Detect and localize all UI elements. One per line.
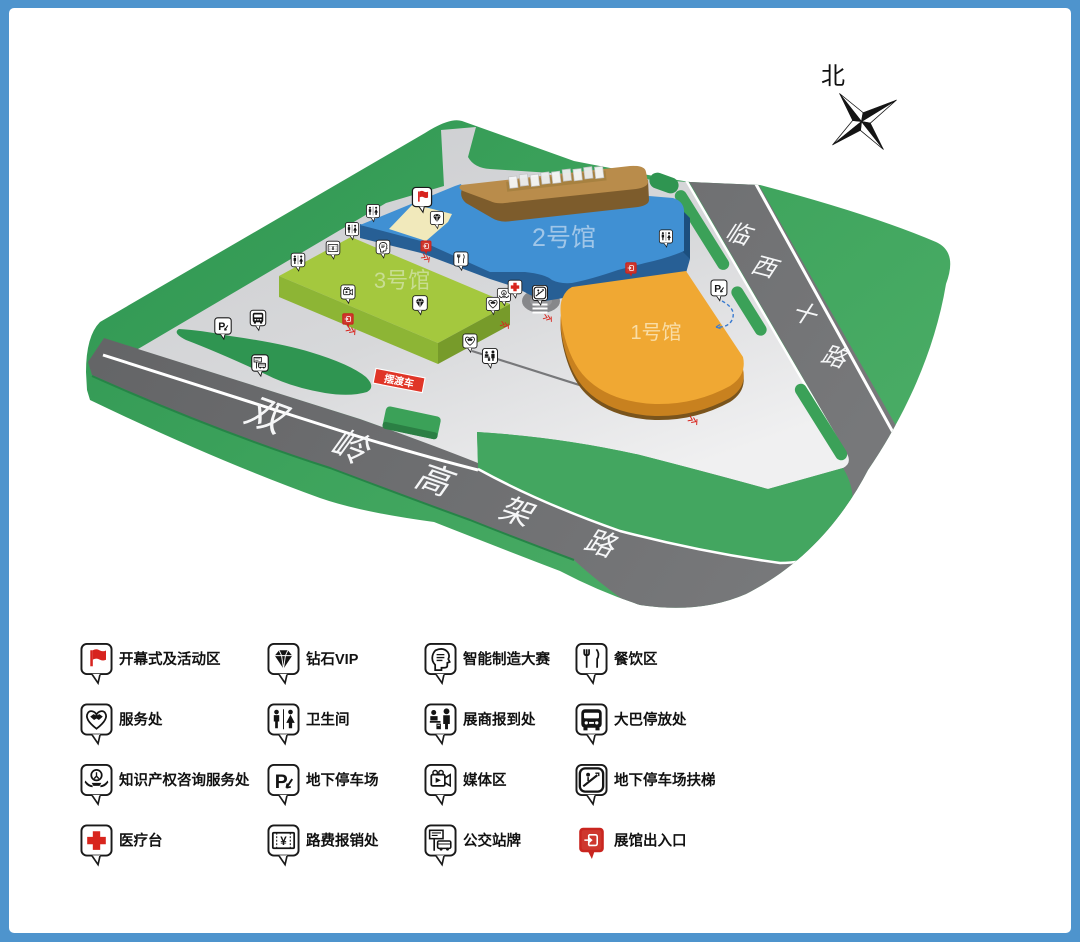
svg-text:钻石VIP: 钻石VIP	[306, 650, 359, 668]
svg-text:卫生间: 卫生间	[306, 711, 350, 729]
svg-text:路费报销处: 路费报销处	[306, 832, 379, 850]
svg-text:3号馆: 3号馆	[374, 268, 430, 293]
svg-text:开幕式及活动区: 开幕式及活动区	[119, 650, 221, 668]
svg-text:服务处: 服务处	[119, 711, 163, 729]
svg-text:医疗台: 医疗台	[119, 832, 163, 850]
svg-text:地下停车场扶梯: 地下停车场扶梯	[614, 771, 716, 789]
svg-text:地下停车场: 地下停车场	[306, 771, 379, 789]
svg-text:2号馆: 2号馆	[532, 224, 596, 252]
svg-text:媒体区: 媒体区	[463, 771, 507, 789]
svg-text:知识产权咨询服务处: 知识产权咨询服务处	[119, 771, 250, 789]
svg-text:智能制造大赛: 智能制造大赛	[463, 650, 550, 668]
svg-text:公交站牌: 公交站牌	[463, 832, 521, 850]
svg-text:展馆出入口: 展馆出入口	[614, 832, 687, 850]
svg-text:北: 北	[821, 63, 845, 90]
svg-text:1号馆: 1号馆	[630, 321, 681, 344]
svg-text:大巴停放处: 大巴停放处	[614, 711, 687, 729]
svg-text:展商报到处: 展商报到处	[463, 711, 536, 729]
svg-text:餐饮区: 餐饮区	[614, 650, 658, 668]
